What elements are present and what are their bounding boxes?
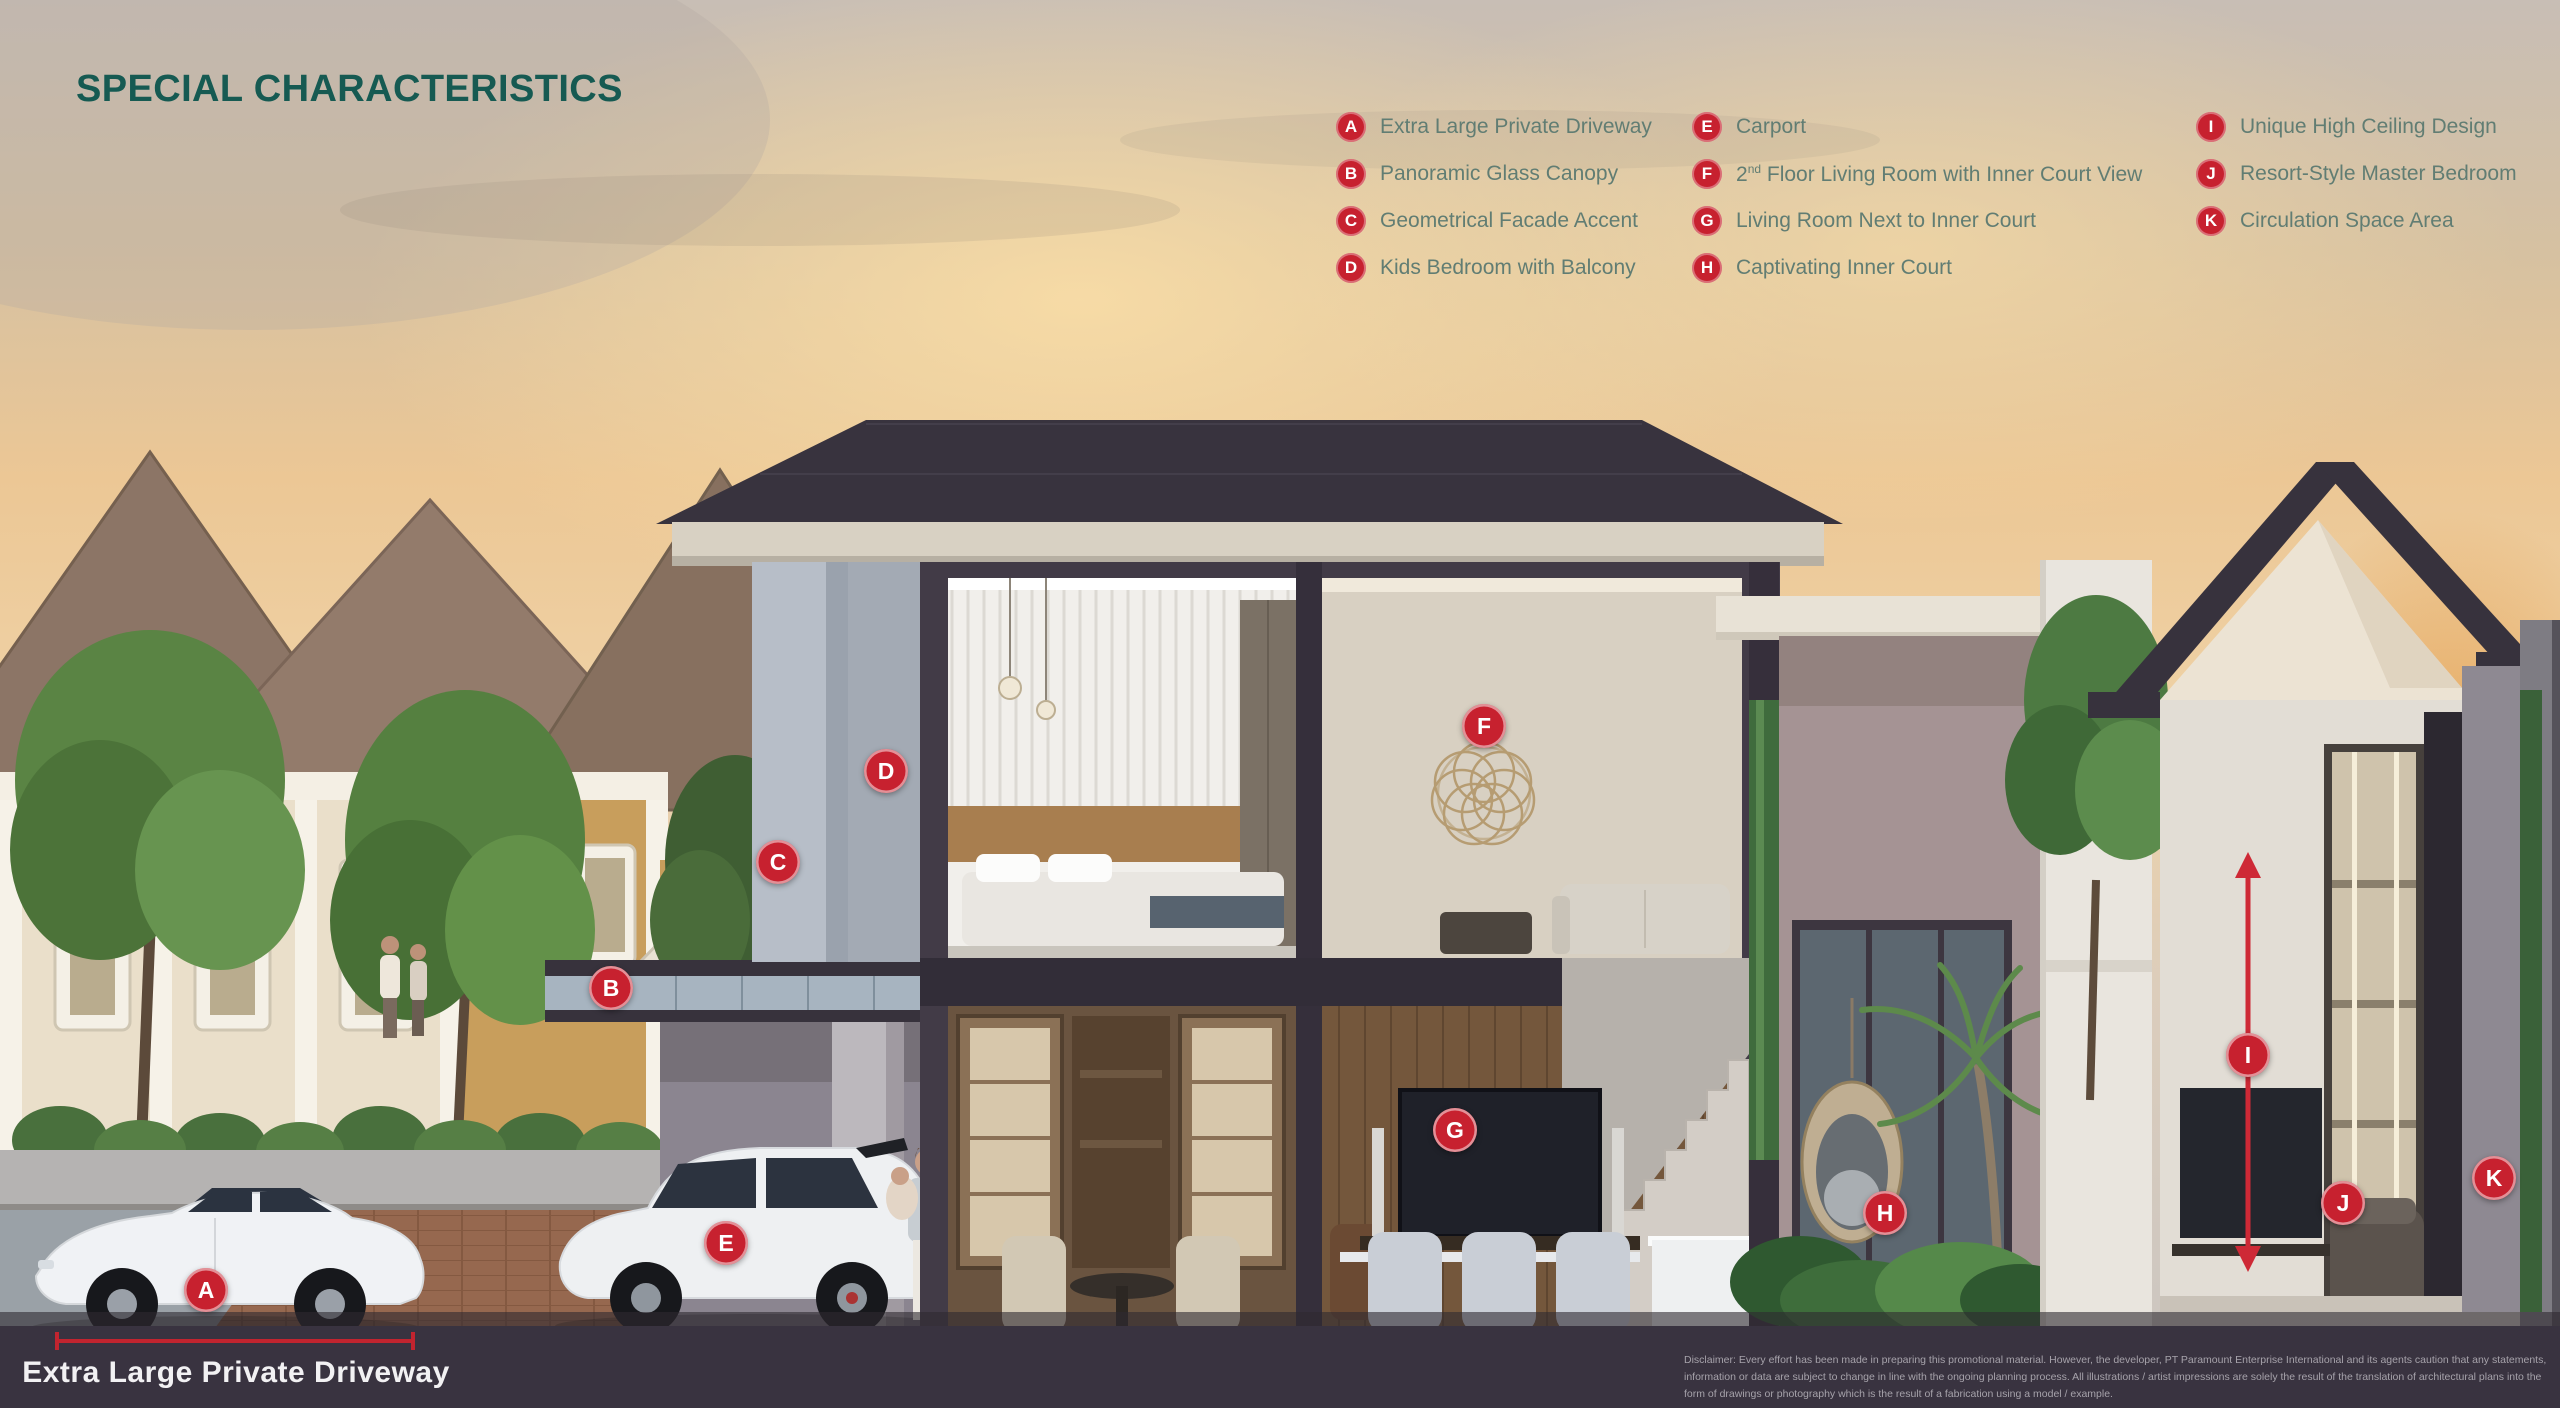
legend-label-c: Geometrical Facade Accent — [1380, 209, 1638, 233]
legend-item-c: C Geometrical Facade Accent — [1336, 206, 1652, 236]
legend-badge-c: C — [1336, 206, 1366, 236]
legend-label-i: Unique High Ceiling Design — [2240, 115, 2497, 139]
marker-i: I — [2226, 1033, 2270, 1077]
poster: SPECIAL CHARACTERISTICS A Extra Large Pr… — [0, 0, 2560, 1408]
marker-k: K — [2472, 1156, 2516, 1200]
marker-h: H — [1863, 1191, 1907, 1235]
marker-a: A — [184, 1268, 228, 1312]
legend-badge-g: G — [1692, 206, 1722, 236]
legend-item-d: D Kids Bedroom with Balcony — [1336, 253, 1652, 283]
marker-c: C — [756, 840, 800, 884]
second-floor-living-room — [1322, 578, 1742, 958]
legend-item-b: B Panoramic Glass Canopy — [1336, 159, 1652, 189]
ground-floor-living-room — [1322, 958, 1766, 1332]
marker-b: B — [589, 966, 633, 1010]
kids-bedroom — [948, 578, 1296, 958]
legend-item-j: J Resort-Style Master Bedroom — [2196, 159, 2517, 189]
legend-badge-i: I — [2196, 112, 2226, 142]
legend-item-e: E Carport — [1692, 112, 2142, 142]
legend-item-f: F 2nd Floor Living Room with Inner Court… — [1692, 159, 2142, 189]
legend-label-f: 2nd Floor Living Room with Inner Court V… — [1736, 162, 2142, 187]
marker-e: E — [704, 1221, 748, 1265]
legend-badge-h: H — [1692, 253, 1722, 283]
legend-label-g: Living Room Next to Inner Court — [1736, 209, 2036, 233]
disclaimer-text: Disclaimer: Every effort has been made i… — [1684, 1352, 2548, 1403]
legend-label-b: Panoramic Glass Canopy — [1380, 162, 1618, 186]
legend-badge-e: E — [1692, 112, 1722, 142]
legend-badge-k: K — [2196, 206, 2226, 236]
marker-d: D — [864, 749, 908, 793]
driveway-callout-label: Extra Large Private Driveway — [15, 1356, 457, 1390]
driveway-measure-line — [55, 1339, 415, 1343]
house-cross-section-illustration — [0, 0, 2560, 1408]
legend-item-h: H Captivating Inner Court — [1692, 253, 2142, 283]
legend-badge-a: A — [1336, 112, 1366, 142]
legend-badge-j: J — [2196, 159, 2226, 189]
legend-badge-d: D — [1336, 253, 1366, 283]
page-title: SPECIAL CHARACTERISTICS — [76, 68, 623, 111]
legend-column-2: E Carport F 2nd Floor Living Room with I… — [1692, 112, 2142, 300]
legend-item-i: I Unique High Ceiling Design — [2196, 112, 2517, 142]
legend-label-d: Kids Bedroom with Balcony — [1380, 256, 1636, 280]
legend-badge-b: B — [1336, 159, 1366, 189]
legend-label-k: Circulation Space Area — [2240, 209, 2454, 233]
legend-item-k: K Circulation Space Area — [2196, 206, 2517, 236]
legend-label-h: Captivating Inner Court — [1736, 256, 1952, 280]
legend-item-a: A Extra Large Private Driveway — [1336, 112, 1652, 142]
legend-badge-f: F — [1692, 159, 1722, 189]
legend-label-j: Resort-Style Master Bedroom — [2240, 162, 2517, 186]
marker-f: F — [1462, 704, 1506, 748]
legend-label-a: Extra Large Private Driveway — [1380, 115, 1652, 139]
legend-label-e: Carport — [1736, 115, 1806, 139]
marker-j: J — [2321, 1181, 2365, 1225]
display-cabinet-room — [948, 1006, 1296, 1332]
legend-item-g: G Living Room Next to Inner Court — [1692, 206, 2142, 236]
marker-g: G — [1433, 1108, 1477, 1152]
legend-column-3: I Unique High Ceiling Design J Resort-St… — [2196, 112, 2517, 253]
legend-column-1: A Extra Large Private Driveway B Panoram… — [1336, 112, 1652, 300]
